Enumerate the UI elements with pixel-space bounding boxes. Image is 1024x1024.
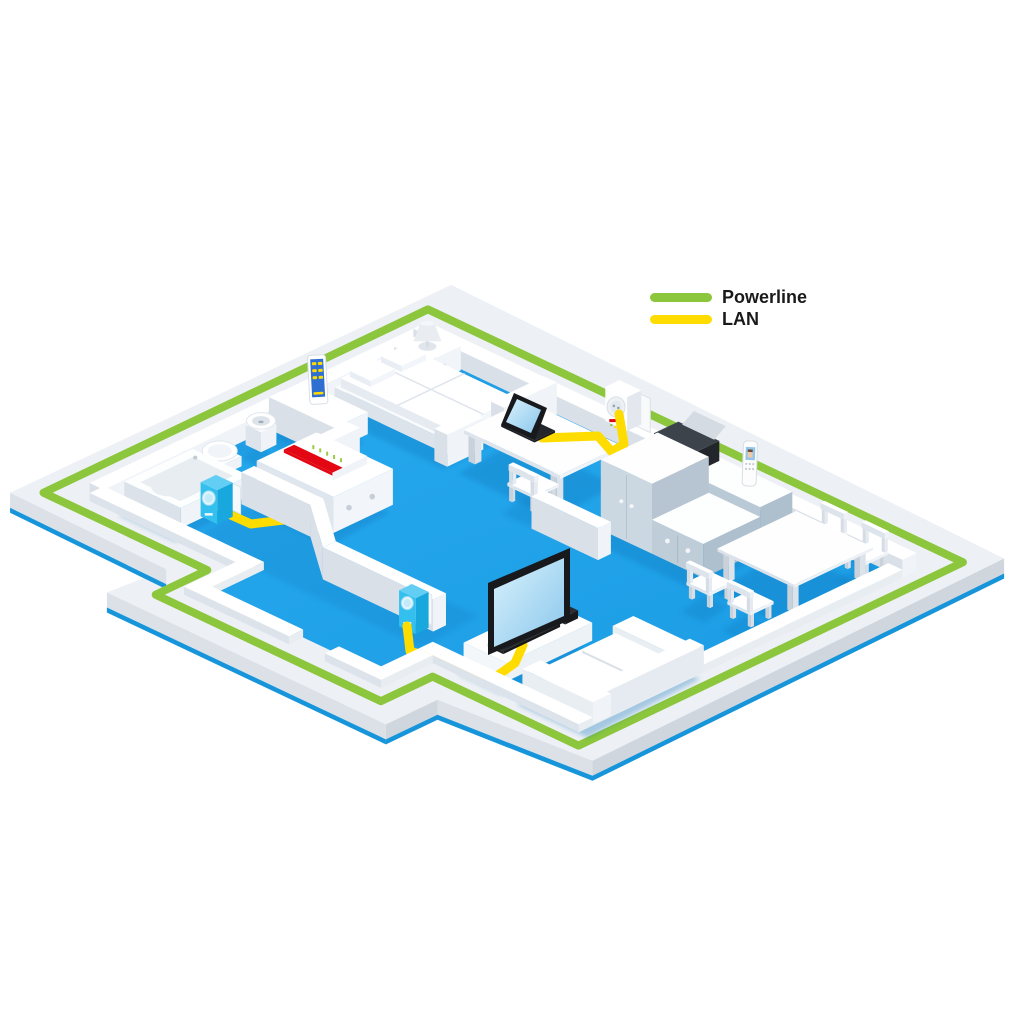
powerline-swatch-icon bbox=[650, 293, 712, 302]
shape bbox=[416, 592, 429, 634]
cordless-phone bbox=[742, 441, 758, 486]
shape bbox=[748, 449, 753, 452]
shape bbox=[318, 362, 323, 365]
shape bbox=[787, 583, 793, 613]
shape bbox=[614, 426, 616, 428]
shape bbox=[627, 390, 641, 431]
router-led bbox=[326, 452, 328, 456]
shape bbox=[610, 424, 612, 426]
shape bbox=[208, 444, 232, 458]
shape bbox=[312, 362, 317, 365]
shape bbox=[469, 435, 475, 464]
legend-label-powerline: Powerline bbox=[722, 288, 807, 306]
shape bbox=[751, 613, 754, 627]
router-led bbox=[333, 455, 335, 459]
shape bbox=[665, 539, 670, 544]
shape bbox=[768, 605, 771, 620]
apartment-floorplan-illustration bbox=[0, 0, 1024, 1024]
shape bbox=[312, 369, 317, 372]
shape bbox=[404, 599, 411, 607]
shape bbox=[318, 369, 323, 372]
legend: Powerline LAN bbox=[650, 288, 807, 328]
shape bbox=[433, 593, 446, 631]
lan-swatch-icon bbox=[650, 315, 712, 324]
shape bbox=[258, 421, 263, 424]
shape bbox=[193, 456, 197, 460]
legend-label-lan: LAN bbox=[722, 310, 759, 328]
shape bbox=[369, 494, 375, 500]
router-led bbox=[340, 458, 342, 462]
shape bbox=[613, 405, 616, 408]
smartphone bbox=[307, 355, 328, 405]
shape bbox=[205, 494, 213, 503]
shape bbox=[434, 429, 447, 467]
router-led bbox=[312, 445, 314, 449]
shape bbox=[619, 499, 623, 503]
shape bbox=[630, 504, 634, 508]
shape bbox=[710, 594, 713, 609]
shape bbox=[313, 376, 318, 379]
legend-row-powerline: Powerline bbox=[650, 288, 807, 306]
shape bbox=[509, 487, 512, 502]
shape bbox=[617, 407, 620, 410]
shape bbox=[420, 321, 434, 326]
router-led bbox=[319, 448, 321, 452]
shape bbox=[151, 478, 187, 496]
shape bbox=[685, 548, 690, 553]
shape bbox=[205, 513, 213, 516]
shape bbox=[319, 376, 324, 379]
legend-row-lan: LAN bbox=[650, 310, 807, 328]
shape bbox=[598, 522, 611, 560]
illustration-stage: Powerline LAN bbox=[0, 0, 1024, 1024]
shape bbox=[723, 552, 729, 582]
shape bbox=[346, 505, 352, 511]
shape bbox=[313, 392, 323, 395]
